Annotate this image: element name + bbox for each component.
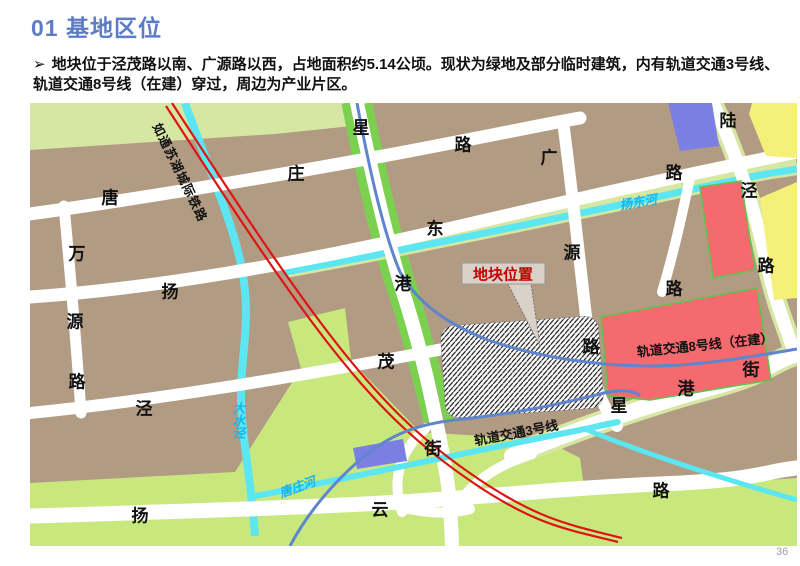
road-ramp-south [404, 508, 470, 513]
map-label-road: 街 [743, 356, 760, 381]
map-label-road: 路 [69, 368, 86, 393]
map-label-road: 广 [541, 144, 558, 169]
bullet-text: 地块位于泾茂路以南、广源路以西，占地面积约5.14公顷。现状为绿地及部分临时建筑… [33, 56, 779, 93]
page-number: 36 [776, 546, 788, 558]
map-label-road: 陆 [720, 107, 737, 132]
site-callout-label: 地块位置 [473, 264, 533, 285]
map-label-road: 路 [455, 131, 472, 156]
map-label-road: 星 [611, 392, 628, 417]
page-title: 01 基地区位 [31, 9, 162, 43]
map-label-road: 茂 [378, 348, 395, 373]
map-label-road: 路 [758, 252, 775, 277]
map-label-road: 万 [69, 240, 86, 265]
map-label-road: 路 [583, 333, 600, 358]
map-label-road: 泾 [741, 177, 758, 202]
map-label-road: 港 [395, 270, 412, 295]
map-label-road: 路 [666, 275, 683, 300]
map-label-river: 大水泾 [229, 401, 248, 439]
site-location-map: 唐庄路星港街万源路扬东路广源路泾茂陆泾路路星港街扬云路扬东河大水泾唐庄河轨道交通… [30, 103, 797, 546]
map-label-road: 路 [666, 159, 683, 184]
map-label-road: 街 [425, 435, 442, 460]
map-label-road: 源 [564, 239, 581, 264]
map-label-road: 扬 [162, 278, 179, 303]
bullet-marker: ➢ [33, 56, 46, 73]
map-label-road: 路 [653, 477, 670, 502]
map-label-road: 星 [353, 114, 370, 139]
map-label-road: 云 [372, 496, 389, 521]
map-label-road: 港 [678, 375, 695, 400]
map-label-road: 庄 [288, 160, 305, 185]
map-label-road: 唐 [102, 184, 119, 209]
bullet-paragraph: ➢地块位于泾茂路以南、广源路以西，占地面积约5.14公顷。现状为绿地及部分临时建… [33, 55, 781, 95]
map-label-road: 扬 [132, 502, 149, 527]
map-label-road: 源 [67, 308, 84, 333]
map-label-road: 东 [427, 215, 444, 240]
map-label-road: 泾 [136, 395, 153, 420]
